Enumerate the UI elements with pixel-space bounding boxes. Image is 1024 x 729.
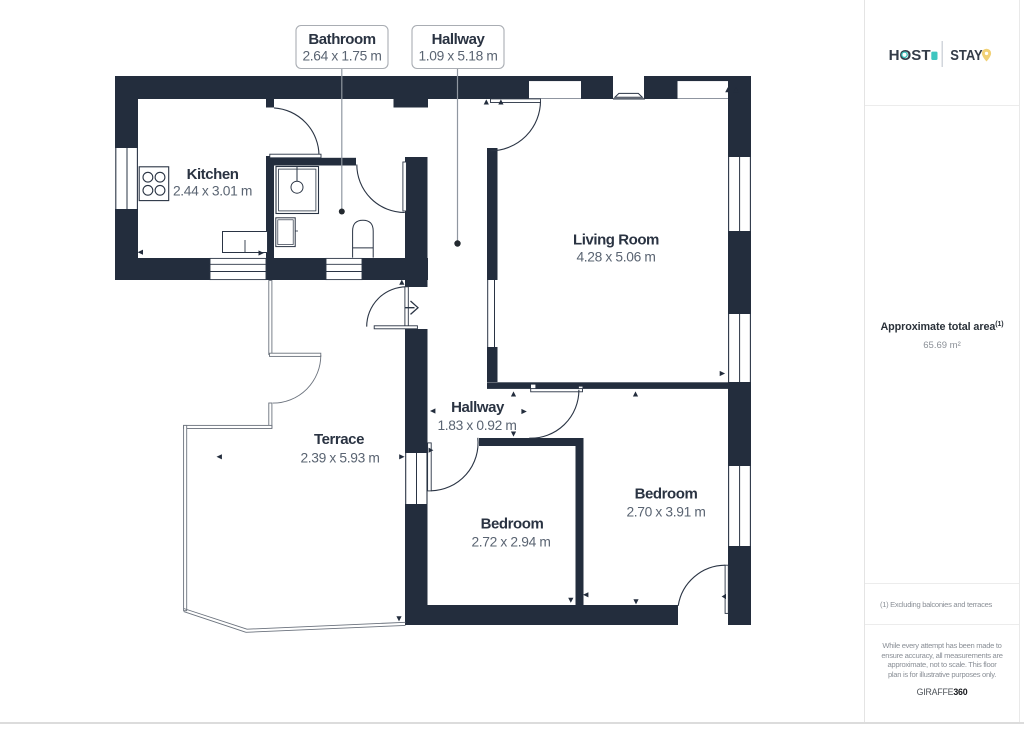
svg-text:2.64 x 1.75 m: 2.64 x 1.75 m [302, 49, 381, 64]
svg-text:2.72 x 2.94 m: 2.72 x 2.94 m [471, 535, 550, 550]
svg-text:Hallway: Hallway [451, 399, 505, 416]
svg-text:Bedroom: Bedroom [635, 486, 698, 503]
svg-text:1.09 x 5.18 m: 1.09 x 5.18 m [418, 49, 497, 64]
svg-text:Living Room: Living Room [573, 232, 659, 249]
svg-text:Kitchen: Kitchen [187, 166, 239, 183]
svg-text:Bathroom: Bathroom [308, 31, 375, 48]
svg-text:2.70 x 3.91 m: 2.70 x 3.91 m [626, 505, 705, 520]
svg-text:2.39 x 5.93 m: 2.39 x 5.93 m [300, 451, 379, 466]
svg-text:Bedroom: Bedroom [481, 516, 544, 533]
svg-text:Hallway: Hallway [432, 31, 486, 48]
svg-text:4.28 x 5.06 m: 4.28 x 5.06 m [576, 250, 655, 265]
svg-text:Terrace: Terrace [314, 431, 364, 448]
svg-text:2.44 x 3.01 m: 2.44 x 3.01 m [173, 184, 252, 199]
svg-text:1.83 x 0.92 m: 1.83 x 0.92 m [437, 418, 516, 433]
svg-text:HOST: HOST [889, 47, 932, 64]
svg-text:STAY: STAY [950, 47, 983, 64]
